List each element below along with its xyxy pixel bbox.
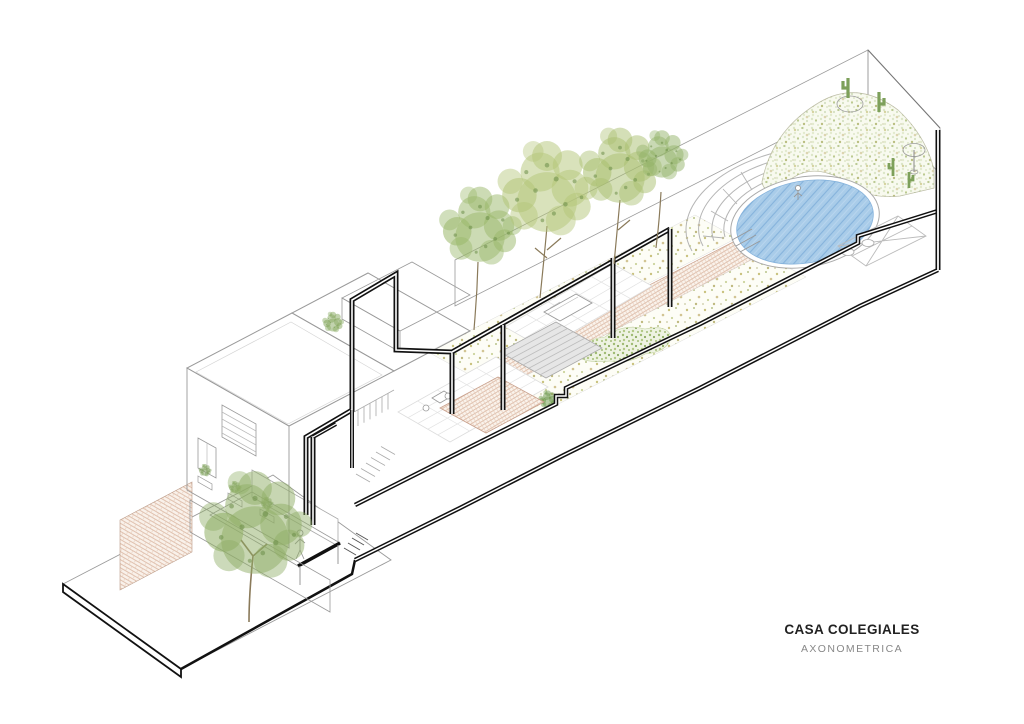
front-tree: [199, 471, 312, 578]
entry-steps: [344, 533, 368, 555]
chair: [423, 405, 429, 411]
title-block: CASA COLEGIALES AXONOMETRICA: [784, 622, 919, 655]
canopy-posts: [300, 545, 338, 585]
louver-window: [222, 405, 256, 456]
drawing-subtitle: AXONOMETRICA: [801, 643, 903, 655]
axonometric-drawing: CASA COLEGIALES AXONOMETRICA: [0, 0, 1024, 724]
louver-slats: [222, 412, 256, 452]
drawing-sheet: CASA COLEGIALES AXONOMETRICA: [0, 0, 1024, 724]
stair: [354, 390, 395, 482]
roof-shrub: [322, 312, 344, 333]
roof-front-block: [187, 313, 394, 426]
sidewalk-curb-edge: [63, 584, 181, 677]
house: [120, 262, 652, 612]
front-garden-side-wall: [120, 482, 192, 590]
drawing-title: CASA COLEGIALES: [784, 622, 919, 637]
pool-chair: [862, 240, 874, 247]
